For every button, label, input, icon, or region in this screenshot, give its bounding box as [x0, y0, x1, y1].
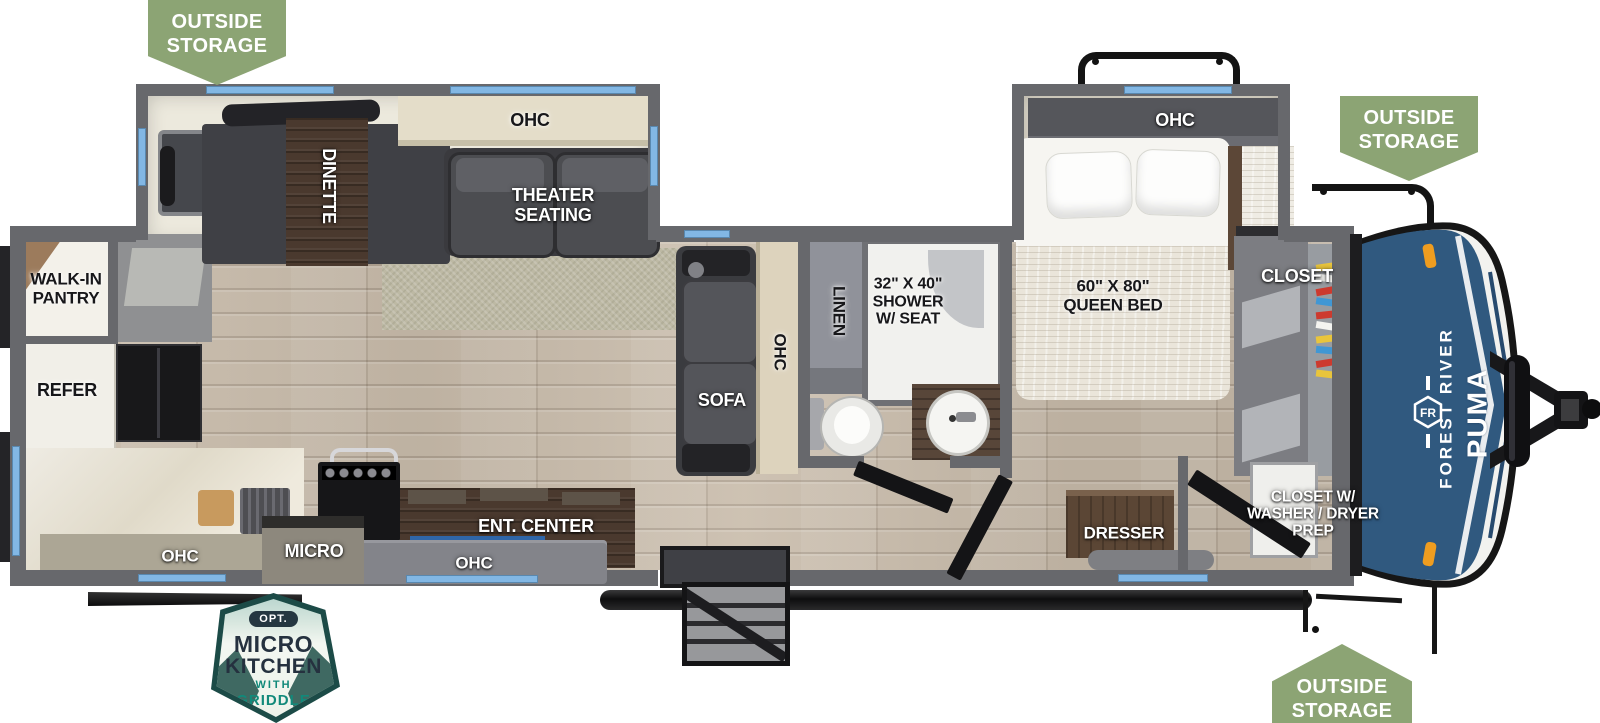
label-line: THEATER [512, 186, 594, 206]
label-line: WALK-IN [30, 270, 101, 289]
entry-steps [682, 582, 790, 666]
wall-bottom-right [778, 570, 1354, 586]
label-theater-seating: THEATER SEATING [512, 186, 594, 226]
banner-line: OUTSIDE [148, 11, 286, 35]
logo-dash [1426, 434, 1430, 448]
stove-knobs [322, 466, 396, 480]
label-kitchen-ohc: OHC [161, 548, 198, 567]
ent-center-top [480, 488, 548, 501]
label-line: 32" X 40" [873, 276, 944, 294]
window [684, 230, 730, 238]
banner-line: OUTSIDE [1272, 676, 1412, 700]
label-line: SEATING [512, 206, 594, 226]
ent-center-top [408, 490, 466, 504]
handle-rivet [1320, 188, 1327, 195]
handle-rivet [1408, 188, 1415, 195]
linen-closet-base [810, 368, 864, 394]
label-sofa-ohc: OHC [770, 333, 789, 370]
toilet-bowl [834, 406, 870, 444]
window [406, 575, 538, 583]
sofa-cushion [682, 280, 758, 364]
microwave-top [262, 516, 364, 528]
label-line: WASHER / DRYER [1247, 505, 1379, 522]
roof-grab-handle [1078, 52, 1240, 86]
badge-opt-pill: OPT. [249, 611, 297, 627]
front-jack-post [1432, 582, 1437, 654]
sink [926, 390, 990, 456]
banner-line: OUTSIDE [1340, 107, 1478, 131]
window [450, 86, 636, 94]
refrigerator-door-split [157, 348, 160, 438]
label-sofa: SOFA [698, 391, 746, 411]
hitch [1490, 345, 1600, 475]
window [138, 128, 146, 186]
window [650, 126, 658, 186]
label-line: QUEEN BED [1063, 296, 1162, 315]
faucet [956, 412, 976, 422]
window [138, 574, 226, 582]
logo-dash [1426, 376, 1430, 390]
washer-closet-wall [1178, 456, 1188, 572]
label-ent-center: ENT. CENTER [478, 517, 594, 537]
dresser-platform [1088, 550, 1214, 570]
label-line: PREP [1247, 523, 1379, 540]
label-dinette: DINETTE [318, 148, 338, 224]
pantry-wall [20, 336, 118, 344]
bedroom-slide-wall-right [1278, 84, 1290, 240]
badge-line-micro: MICRO [213, 631, 334, 658]
window [1118, 574, 1208, 582]
label-line: 60" X 80" [1063, 277, 1162, 296]
label-refer: REFER [37, 381, 97, 401]
banner-outside-storage-bottom-right: OUTSIDE STORAGE [1272, 644, 1412, 723]
fr-logo-text: FR [1420, 406, 1436, 420]
bedroom-slide-wall-left [1012, 84, 1024, 240]
cup-holder [688, 262, 704, 278]
label-closet: CLOSET [1261, 267, 1333, 287]
pillow [1135, 149, 1221, 218]
queen-bed-mattress [1016, 246, 1230, 400]
label-linen: LINEN [829, 286, 848, 336]
banner-outside-storage-top-left: OUTSIDE STORAGE [148, 0, 286, 85]
label-line: PANTRY [30, 289, 101, 308]
handle-rivet [1216, 58, 1223, 65]
label-queen-bed: 60" X 80" QUEEN BED [1063, 277, 1162, 314]
label-shower: 32" X 40" SHOWER W/ SEAT [873, 276, 944, 329]
floorplan-canvas: FR FOREST RIVER PUMA WALK-IN PANTRY REFE… [0, 0, 1600, 723]
bedroom-wall [1000, 232, 1012, 478]
tongue-jack-highlight [1509, 361, 1515, 461]
ent-center-top [562, 492, 620, 505]
banner-line: STORAGE [1340, 131, 1478, 155]
label-line: CLOSET W/ [1247, 488, 1379, 505]
bath-wall-bottom [798, 456, 864, 468]
option-badge-micro-kitchen: OPT. MICRO KITCHEN WITH GRIDDLE [207, 593, 340, 723]
brand-maker: FOREST RIVER [1438, 327, 1457, 489]
sofa-armrest [682, 444, 750, 472]
window [12, 446, 20, 556]
pillow [1045, 151, 1133, 220]
window [1124, 86, 1232, 94]
label-ent-ohc: OHC [455, 555, 492, 574]
label-bedroom-ohc: OHC [1155, 111, 1194, 131]
tongue-jack [1504, 355, 1530, 467]
frame-line [1316, 594, 1402, 603]
badge-line-with: WITH [213, 679, 334, 691]
badge-line-griddle: GRIDDLE [213, 692, 334, 709]
label-micro: MICRO [285, 542, 344, 562]
label-dresser: DRESSER [1084, 525, 1165, 544]
label-living-ohc: OHC [510, 111, 549, 131]
hitch-coupler-inner [1561, 399, 1579, 421]
label-line: SHOWER [873, 293, 944, 311]
cutting-board [198, 490, 234, 526]
banner-outside-storage-top-right: OUTSIDE STORAGE [1340, 96, 1478, 181]
bath-wall-left [798, 232, 810, 468]
window [206, 86, 334, 94]
drain [949, 415, 956, 422]
badge-inner: OPT. MICRO KITCHEN WITH GRIDDLE [213, 599, 334, 717]
badge-line-kitchen: KITCHEN [213, 655, 334, 679]
pantry-wall [108, 236, 118, 342]
label-washer-dryer-closet: CLOSET W/ WASHER / DRYER PREP [1247, 488, 1379, 539]
banner-line: STORAGE [1272, 700, 1412, 723]
frame-line [1303, 590, 1308, 632]
window-latch [160, 146, 175, 206]
cabinet-flap [124, 248, 206, 306]
label-walk-in-pantry: WALK-IN PANTRY [30, 270, 101, 307]
badge-opt-tag: OPT. [213, 609, 334, 627]
brand-model: PUMA [1463, 368, 1494, 458]
handle-rivet [1092, 58, 1099, 65]
banner-line: STORAGE [148, 35, 286, 59]
frame-rivet [1312, 626, 1319, 633]
label-line: W/ SEAT [873, 311, 944, 329]
